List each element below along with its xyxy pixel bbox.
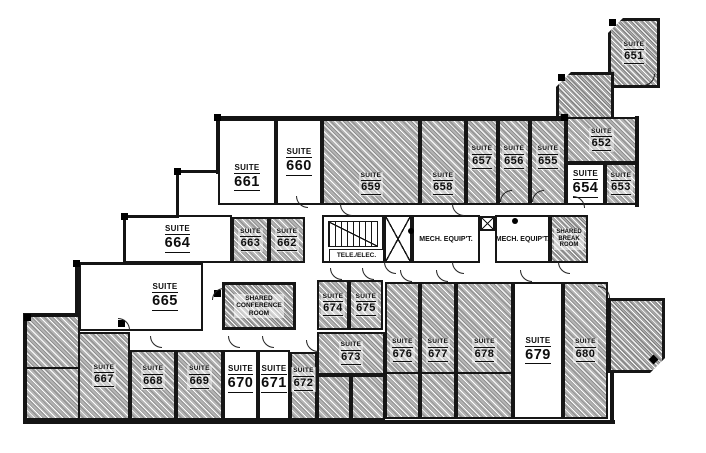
tele-elec-room: TELE./ELEC.: [329, 249, 384, 262]
suite-678-room: SUITE 678: [456, 282, 513, 419]
suite-671-room: SUITE 671: [258, 350, 290, 420]
suite-665-label: SUITE 665: [152, 283, 178, 311]
suite-676-room: SUITE 676: [385, 282, 420, 419]
column-marker: [609, 19, 616, 26]
suite-669-room: SUITE 669: [176, 350, 223, 420]
door-swing-arc: [436, 270, 448, 282]
column-marker: [24, 314, 31, 321]
wall-segment: [635, 116, 639, 207]
suite-677-room: SUITE 677: [420, 282, 456, 419]
wall-segment: [23, 420, 615, 424]
shared-break-room-label: SHARED BREAK ROOM: [554, 228, 583, 251]
door-swing-arc: [558, 262, 570, 274]
suite-680-east-wing: [608, 298, 665, 373]
door-swing-arc: [330, 268, 342, 280]
column-marker: [73, 260, 80, 267]
suite-679-room: SUITE 679: [513, 282, 563, 419]
suite-673-room: SUITE 673: [317, 332, 385, 375]
suite-680-label: SUITE 680: [573, 338, 598, 363]
suite-657-label: SUITE 657: [470, 145, 495, 170]
suite-669-label: SUITE 669: [187, 365, 212, 390]
column-marker: [174, 168, 181, 175]
suite-668-room: SUITE 668: [130, 350, 176, 420]
suite-667-label: SUITE 667: [92, 364, 117, 389]
suite-679-label: SUITE 679: [525, 337, 551, 365]
wall-segment: [176, 170, 220, 173]
wall-segment: [386, 372, 419, 374]
suite-652-label: SUITE 652: [589, 128, 614, 153]
suite-653-label: SUITE 653: [609, 172, 634, 197]
floor-plan: SUITE 651 SUITE 661 SUITE 660 SUITE 659 …: [0, 0, 706, 453]
door-swing-arc: [400, 270, 412, 282]
suite-670-room: SUITE 670: [223, 350, 258, 420]
door-swing-arc: [598, 286, 610, 298]
suite-659-room: SUITE 659: [322, 119, 420, 205]
suite-663-room: SUITE 663: [232, 217, 269, 263]
suite-673-sub-room-a: [317, 375, 351, 420]
suite-667-room: SUITE 667: [78, 332, 130, 420]
stairs-icon: [328, 221, 378, 247]
wall-segment: [23, 313, 80, 316]
suite-674-room: SUITE 674: [317, 280, 349, 330]
door-swing-arc: [452, 262, 464, 274]
suite-664-label: SUITE 664: [165, 225, 191, 253]
wall-segment: [216, 116, 568, 120]
suite-656-room: SUITE 656: [498, 119, 530, 205]
suite-671-label: SUITE 671: [261, 365, 287, 393]
wall-segment: [176, 170, 179, 218]
suite-677-label: SUITE 677: [426, 338, 451, 363]
mech-equipment-2-label: MECH. EQUIP'T.: [496, 236, 549, 243]
suite-668-label: SUITE 668: [141, 365, 166, 390]
suite-672-label: SUITE 672: [291, 367, 316, 392]
elevator-shaft-icon: [384, 215, 412, 263]
suite-660-label: SUITE 660: [286, 148, 312, 176]
suite-654-label: SUITE 654: [573, 170, 599, 198]
small-shaft-icon: [480, 216, 495, 231]
suite-654-room: SUITE 654: [566, 163, 605, 205]
suite-661-label: SUITE 661: [234, 164, 260, 192]
suite-674-label: SUITE 674: [321, 293, 346, 318]
door-swing-arc: [306, 340, 318, 352]
wall-segment: [421, 372, 455, 374]
suite-663-label: SUITE 663: [238, 228, 263, 253]
suite-670-label: SUITE 670: [228, 365, 254, 393]
wall-segment: [75, 262, 126, 265]
suite-658-room: SUITE 658: [420, 119, 466, 205]
mech-equipment-room-1: MECH. EQUIP'T.: [412, 215, 480, 263]
wall-segment: [216, 116, 220, 174]
wall-segment: [610, 372, 614, 424]
suite-660-room: SUITE 660: [276, 119, 322, 205]
suite-662-label: SUITE 662: [275, 228, 300, 253]
suite-652-room: SUITE 652: [566, 117, 637, 163]
suite-653-room: SUITE 653: [605, 163, 637, 205]
suite-659-label: SUITE 659: [359, 172, 384, 197]
tele-elec-label: TELE./ELEC.: [337, 252, 376, 259]
suite-676-label: SUITE 676: [390, 338, 415, 363]
mech-equipment-1-label: MECH. EQUIP'T.: [419, 236, 472, 243]
suite-675-label: SUITE 675: [354, 293, 379, 318]
door-swing-arc: [384, 262, 396, 274]
suite-675-room: SUITE 675: [349, 280, 383, 330]
shared-conference-room-label: SHARED CONFERENCE ROOM: [234, 294, 284, 318]
suite-664-room: SUITE 664: [123, 215, 232, 263]
suite-655-label: SUITE 655: [536, 145, 561, 170]
column-marker: [561, 114, 568, 121]
shared-conference-room: SHARED CONFERENCE ROOM: [222, 282, 296, 330]
wall-segment: [123, 215, 179, 218]
suite-651-label: SUITE 651: [622, 41, 647, 66]
suite-672-room: SUITE 672: [290, 352, 317, 420]
door-swing-arc: [150, 336, 162, 348]
wall-segment: [123, 215, 126, 265]
suite-658-label: SUITE 658: [431, 172, 456, 197]
door-swing-arc: [262, 336, 274, 348]
device-dot-marker: [512, 218, 518, 224]
wall-segment: [75, 262, 78, 317]
mech-equipment-room-2: MECH. EQUIP'T.: [495, 215, 550, 263]
suite-665-room: SUITE 665: [78, 263, 203, 331]
column-marker: [121, 213, 128, 220]
suite-656-label: SUITE 656: [502, 145, 527, 170]
wall-segment: [27, 367, 78, 369]
device-dot-marker: [408, 228, 414, 234]
wall-segment: [457, 372, 512, 374]
door-swing-arc: [520, 270, 532, 282]
suite-662-room: SUITE 662: [269, 217, 305, 263]
shared-break-room: SHARED BREAK ROOM: [550, 215, 588, 263]
suite-661-room: SUITE 661: [218, 119, 276, 205]
door-swing-arc: [362, 268, 374, 280]
suite-680-room: SUITE 680: [563, 282, 608, 419]
suite-673-label: SUITE 673: [339, 341, 364, 366]
column-marker: [558, 74, 565, 81]
door-swing-arc: [296, 196, 308, 208]
column-marker: [214, 114, 221, 121]
suite-678-label: SUITE 678: [472, 338, 497, 363]
suite-657-room: SUITE 657: [466, 119, 498, 205]
door-swing-arc: [228, 336, 240, 348]
suite-673-sub-room-b: [351, 375, 385, 420]
